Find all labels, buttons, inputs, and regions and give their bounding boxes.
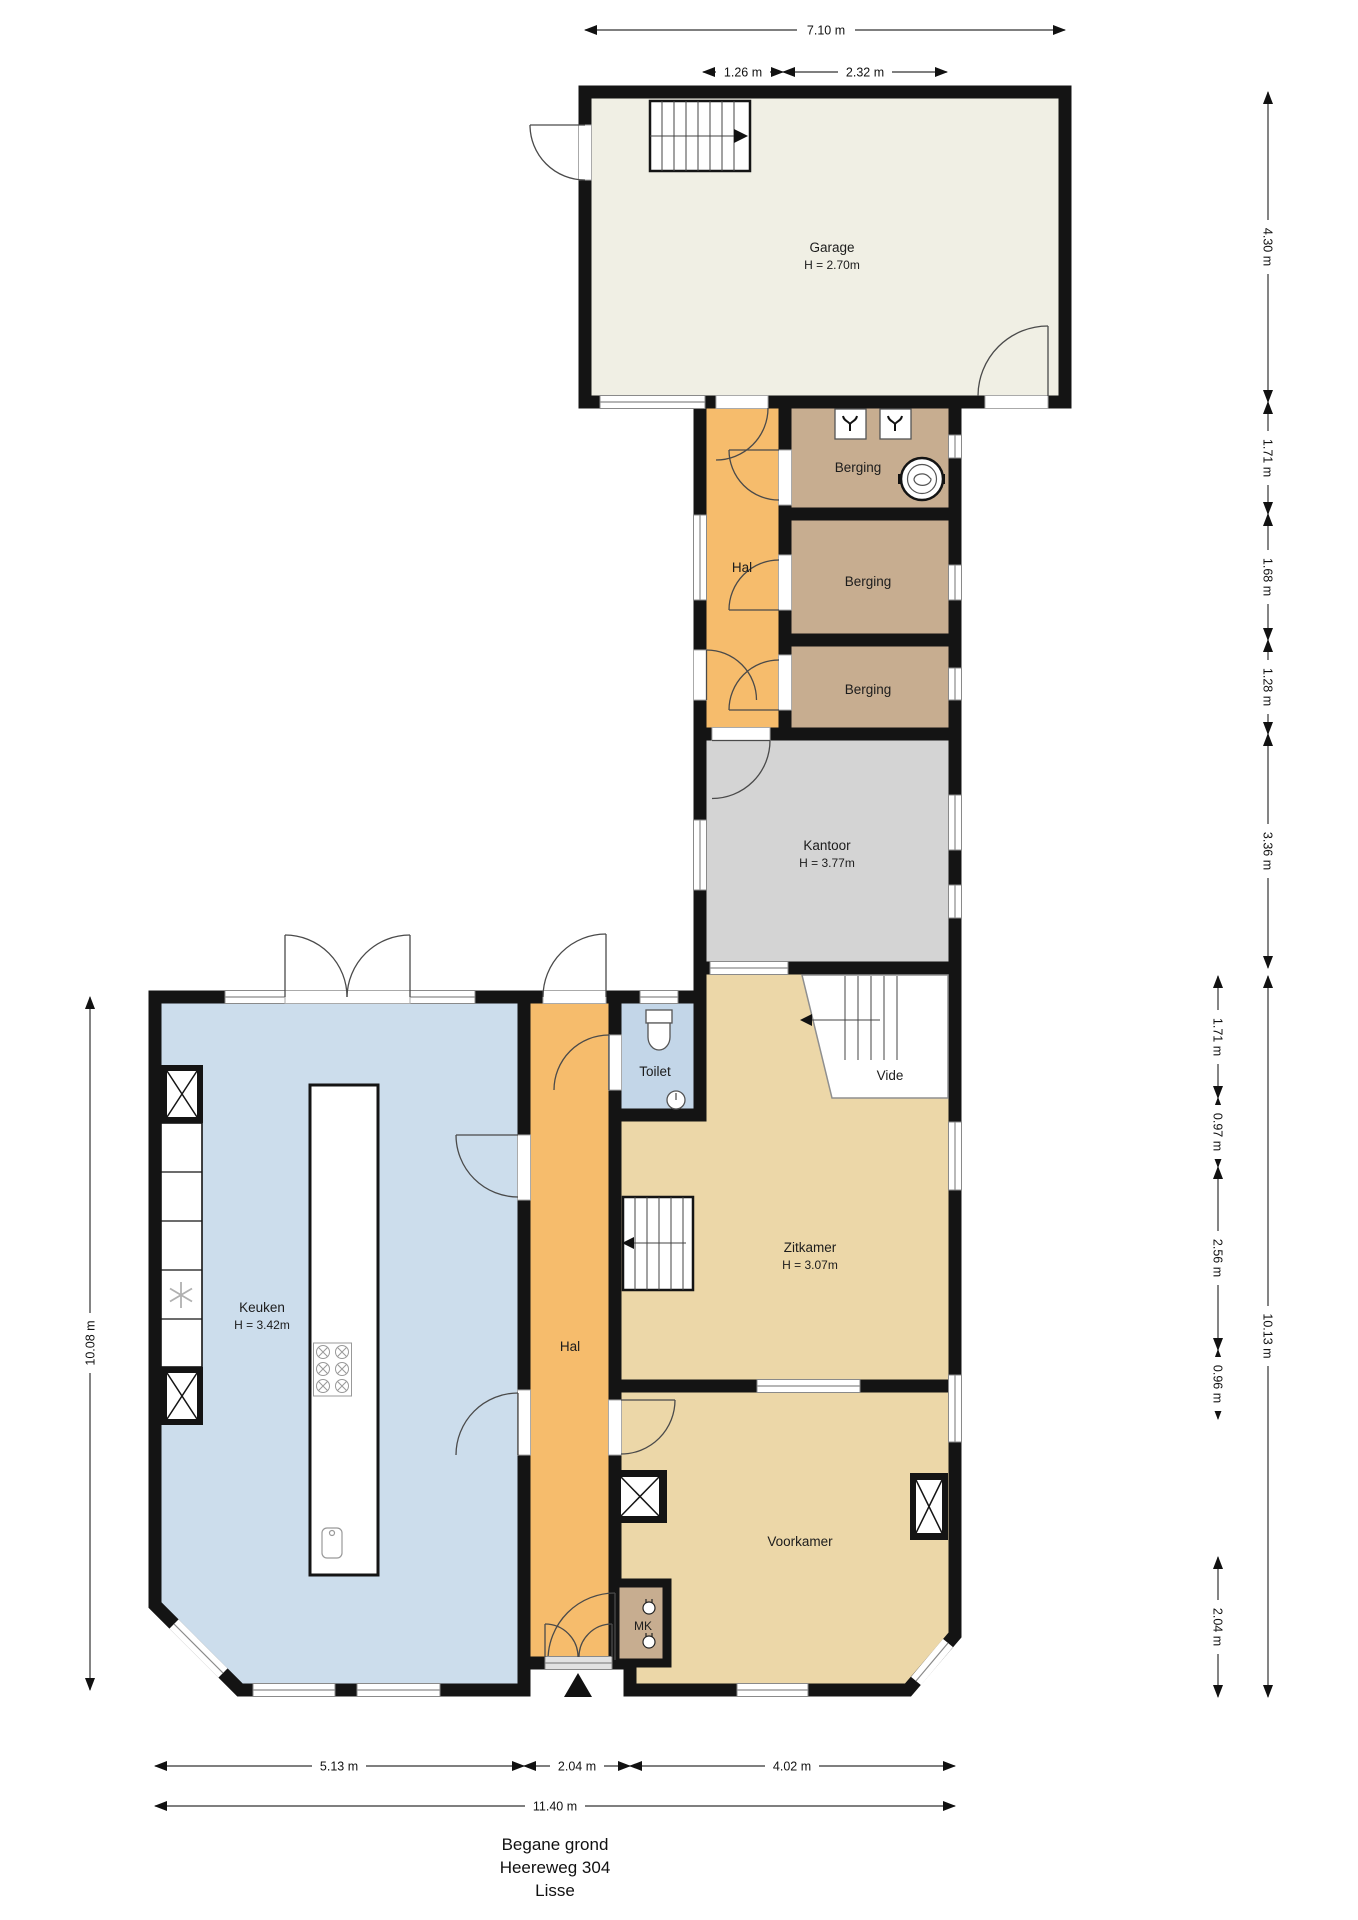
main-stairs <box>622 1197 693 1290</box>
garage-label: Garage <box>809 240 854 255</box>
svg-text:11.40 m: 11.40 m <box>533 1800 577 1814</box>
shaft-icon <box>910 1473 948 1540</box>
mk-label: MK <box>634 1619 652 1633</box>
kantoor-label: Kantoor <box>803 838 851 853</box>
dim-top-total: 7.10 m <box>585 22 1065 38</box>
hal-upper-label: Hal <box>732 560 752 575</box>
svg-text:2.32 m: 2.32 m <box>846 66 884 80</box>
shaft-icon <box>161 1367 203 1425</box>
floorplan-canvas: Garage H = 2.70m Hal Berging Berging Ber… <box>0 0 1358 1920</box>
svg-text:1.71 m: 1.71 m <box>1211 1018 1225 1056</box>
dim-bottom-seg2: 2.04 m <box>524 1758 630 1774</box>
shaft-icon <box>161 1065 203 1123</box>
dim-right-lower-2: 0.97 m <box>1210 1098 1226 1167</box>
dim-right-lower-5: 2.04 m <box>1210 1557 1226 1697</box>
svg-text:10.08 m: 10.08 m <box>84 1320 98 1365</box>
svg-text:3.36 m: 3.36 m <box>1261 832 1275 870</box>
window <box>357 1684 440 1697</box>
dim-right-upper-3: 1.68 m <box>1260 514 1276 640</box>
door <box>285 935 410 1004</box>
entrance-marker-icon <box>564 1673 592 1697</box>
kitchen-island <box>310 1085 378 1575</box>
dim-left-total: 10.08 m <box>82 997 98 1690</box>
washer-connection-icon <box>835 409 866 439</box>
window <box>949 885 962 918</box>
zitkamer-label: Zitkamer <box>784 1240 837 1255</box>
door <box>543 934 606 1004</box>
title-block: Begane grond Heereweg 304 Lisse <box>500 1835 611 1900</box>
vide-label: Vide <box>877 1068 904 1083</box>
window <box>253 1684 335 1697</box>
svg-text:10.13 m: 10.13 m <box>1261 1313 1275 1358</box>
svg-text:1.28 m: 1.28 m <box>1261 668 1275 706</box>
berging2-label: Berging <box>845 574 892 589</box>
dim-top-seg2: 2.32 m <box>783 64 947 80</box>
svg-text:1.26 m: 1.26 m <box>724 66 762 80</box>
voorkamer-label: Voorkamer <box>767 1534 833 1549</box>
floorplan-page: Garage H = 2.70m Hal Berging Berging Ber… <box>0 0 1358 1920</box>
sink-icon <box>667 1091 685 1109</box>
window <box>694 820 707 890</box>
shaft-icon <box>613 1470 667 1523</box>
washer-connection-icon <box>880 409 911 439</box>
berging1-label: Berging <box>835 460 882 475</box>
window <box>949 668 962 700</box>
window <box>410 991 475 1004</box>
window <box>640 991 678 1004</box>
toilet-label: Toilet <box>639 1064 671 1079</box>
svg-text:4.02 m: 4.02 m <box>773 1760 811 1774</box>
svg-text:0.97 m: 0.97 m <box>1211 1113 1225 1151</box>
window <box>949 1375 962 1442</box>
window <box>737 1684 808 1697</box>
dim-bottom-seg1: 5.13 m <box>155 1758 524 1774</box>
svg-text:0.96 m: 0.96 m <box>1211 1365 1225 1403</box>
dim-right-upper-1: 4.30 m <box>1260 92 1276 402</box>
svg-text:7.10 m: 7.10 m <box>807 24 845 38</box>
dim-right-lower-1: 1.71 m <box>1210 976 1226 1098</box>
kitchen-cabinets <box>161 1123 202 1367</box>
window <box>949 435 962 458</box>
dim-right-upper-2: 1.71 m <box>1260 402 1276 514</box>
window <box>757 1380 860 1393</box>
svg-text:5.13 m: 5.13 m <box>320 1760 358 1774</box>
svg-text:1.71 m: 1.71 m <box>1261 439 1275 477</box>
plan-title: Begane grond <box>502 1835 609 1854</box>
sink-icon <box>322 1528 342 1558</box>
dim-bottom-total: 11.40 m <box>155 1798 955 1814</box>
dim-right-upper-4: 1.28 m <box>1260 640 1276 734</box>
dim-right-lower-total: 10.13 m <box>1260 976 1276 1697</box>
door <box>530 125 592 180</box>
dim-right-lower-3: 2.56 m <box>1210 1167 1226 1350</box>
svg-text:1.68 m: 1.68 m <box>1261 558 1275 596</box>
dim-top-seg1: 1.26 m <box>703 64 783 80</box>
window <box>949 565 962 600</box>
svg-text:4.30 m: 4.30 m <box>1261 228 1275 266</box>
window <box>225 991 285 1004</box>
keuken-height: H = 3.42m <box>234 1318 290 1332</box>
svg-text:2.04 m: 2.04 m <box>558 1760 596 1774</box>
keuken-label: Keuken <box>239 1300 285 1315</box>
window <box>949 1122 962 1190</box>
garage-height: H = 2.70m <box>804 258 860 272</box>
toilet-fixture-icon <box>646 1010 672 1050</box>
dim-right-lower-4: 0.96 m <box>1210 1350 1226 1419</box>
window <box>710 962 788 975</box>
dim-bottom-seg3: 4.02 m <box>630 1758 955 1774</box>
window <box>949 795 962 850</box>
window <box>694 515 707 600</box>
kantoor-height: H = 3.77m <box>799 856 855 870</box>
berging3-label: Berging <box>845 682 892 697</box>
garage-stairs <box>650 101 750 171</box>
svg-text:2.04 m: 2.04 m <box>1211 1608 1225 1646</box>
svg-text:2.56 m: 2.56 m <box>1211 1239 1225 1277</box>
plan-city: Lisse <box>535 1881 575 1900</box>
dim-right-upper-5: 3.36 m <box>1260 734 1276 968</box>
stove-icon <box>314 1343 352 1396</box>
window <box>600 396 705 409</box>
hal-lower-label: Hal <box>560 1339 580 1354</box>
room-hal-lower <box>524 997 615 1663</box>
plan-address: Heereweg 304 <box>500 1858 611 1877</box>
zitkamer-height: H = 3.07m <box>782 1258 838 1272</box>
